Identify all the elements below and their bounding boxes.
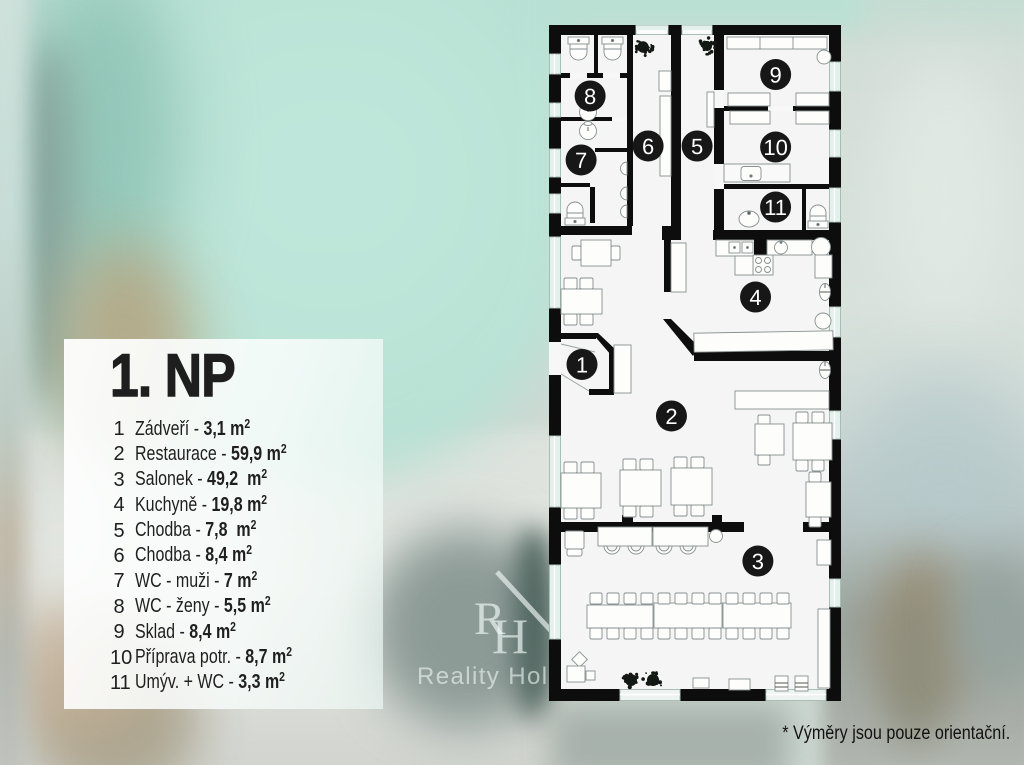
svg-text:1: 1 <box>576 352 588 377</box>
svg-text:2: 2 <box>665 404 677 429</box>
svg-text:10: 10 <box>763 135 787 160</box>
svg-text:3: 3 <box>752 549 764 574</box>
svg-text:9: 9 <box>770 63 782 88</box>
svg-text:8: 8 <box>584 84 596 109</box>
svg-text:7: 7 <box>575 148 587 173</box>
svg-text:4: 4 <box>749 285 761 310</box>
svg-text:6: 6 <box>642 134 654 159</box>
svg-text:11: 11 <box>764 195 787 220</box>
svg-text:5: 5 <box>691 134 703 159</box>
